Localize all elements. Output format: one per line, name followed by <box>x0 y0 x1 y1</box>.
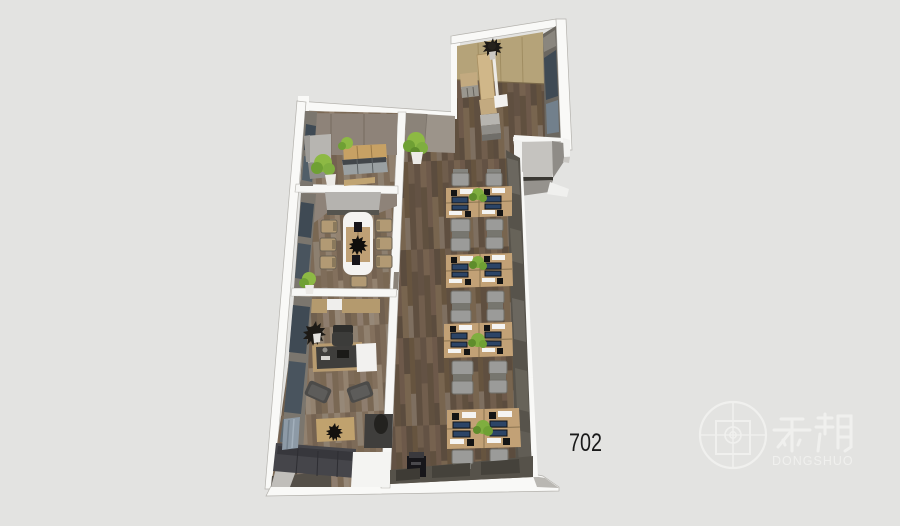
svg-text:DONGSHUO: DONGSHUO <box>772 454 854 468</box>
svg-text:702: 702 <box>569 429 602 457</box>
